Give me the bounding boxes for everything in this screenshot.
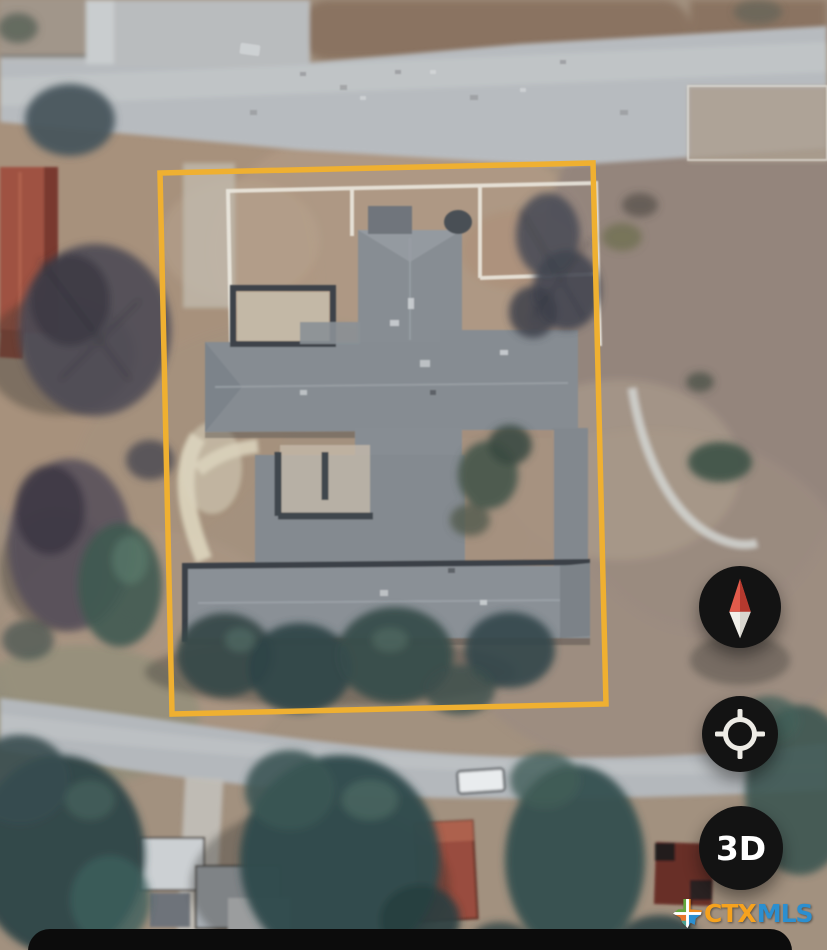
watermark-ctx-text: CTX [704, 899, 756, 928]
3d-button[interactable]: 3D [699, 806, 783, 890]
locate-button[interactable] [702, 696, 778, 772]
map-view[interactable]: 3D CTX MLS [0, 0, 827, 950]
bottom-sheet[interactable] [28, 929, 792, 950]
ctxmls-watermark: CTX MLS [672, 897, 813, 929]
3d-button-label: 3D [716, 829, 766, 868]
texas-state-icon [672, 898, 703, 929]
compass-icon [699, 566, 781, 648]
compass-button[interactable] [699, 566, 781, 648]
watermark-mls-text: MLS [757, 899, 813, 928]
satellite-imagery[interactable] [0, 0, 827, 950]
locate-icon [702, 696, 778, 772]
